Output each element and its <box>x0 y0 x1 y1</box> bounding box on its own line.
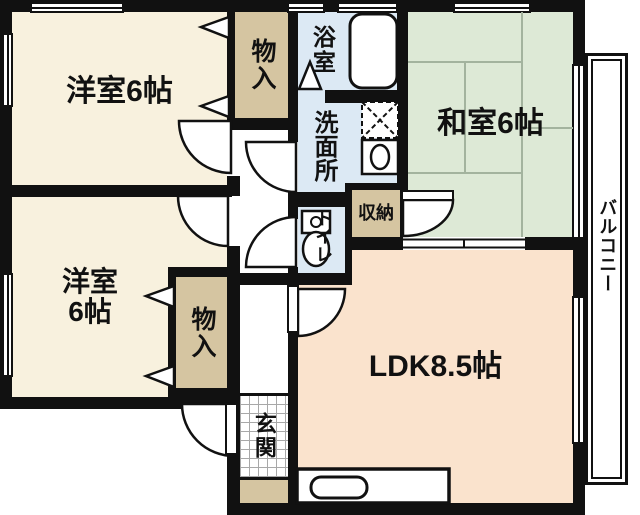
wall <box>227 246 240 397</box>
window <box>337 2 398 13</box>
wall <box>227 176 240 196</box>
wall <box>12 185 232 197</box>
wall <box>525 237 573 250</box>
room-label-text: LDK8.5帖 <box>369 351 502 383</box>
label-entrance: 玄関 <box>240 398 288 474</box>
room-label-text: 6帖 <box>68 297 112 327</box>
wall <box>227 397 240 515</box>
label-storage-bottom: 物入 <box>176 277 227 388</box>
wall <box>288 207 298 219</box>
wall <box>400 190 404 237</box>
room-label-text: 玄関 <box>252 412 276 460</box>
wall <box>345 237 403 250</box>
room-label-text: 洋室6帖 <box>66 76 173 108</box>
label-washroom: 洗面所 <box>298 101 348 191</box>
room-label-text: 物入 <box>248 38 275 92</box>
room-label-text: 物入 <box>188 306 215 360</box>
room-label-ldk: LDK8.5帖 <box>298 250 573 485</box>
room-label-text: 和室6帖 <box>437 108 544 140</box>
door-swing-icon <box>246 142 296 192</box>
room-label-western-1: 洋室6帖 <box>12 12 227 172</box>
wall <box>227 0 235 120</box>
label-toilet: トイレ <box>300 200 345 272</box>
room-label-text: 洗面所 <box>310 110 336 182</box>
room-label-text: バルコニー <box>597 198 616 293</box>
room-label-text: 洋室 <box>62 267 118 297</box>
door-leaf <box>288 286 298 332</box>
balcony-sliding-door <box>572 64 585 239</box>
wall <box>168 388 232 400</box>
label-storage-top: 物入 <box>235 12 288 118</box>
room-label-western-2: 洋室 6帖 <box>12 197 168 397</box>
room-label-japanese: 和室6帖 <box>408 12 573 237</box>
wall <box>168 267 176 388</box>
sliding-door-icon <box>403 238 525 249</box>
room-label-text: トイレ <box>313 209 332 263</box>
floor-plan: 洋室6帖 洋室 6帖 和室6帖 LDK8.5帖 物入 物入 浴室 洗面所 トイレ… <box>0 0 640 515</box>
wall <box>397 0 408 190</box>
label-bath: 浴室 <box>298 12 346 88</box>
wall <box>227 118 290 130</box>
door-swing-icon <box>246 217 296 267</box>
room-label-text: 収納 <box>358 204 394 223</box>
wall <box>288 0 298 142</box>
wall <box>288 330 298 503</box>
balcony-sliding-door <box>572 296 585 444</box>
shoe-cabinet <box>240 477 288 503</box>
wall <box>227 503 585 515</box>
wall <box>168 267 228 277</box>
label-balcony: バルコニー <box>585 110 628 380</box>
room-label-text: 浴室 <box>310 25 335 75</box>
wall <box>345 183 404 190</box>
label-closet: 収納 <box>352 190 400 237</box>
